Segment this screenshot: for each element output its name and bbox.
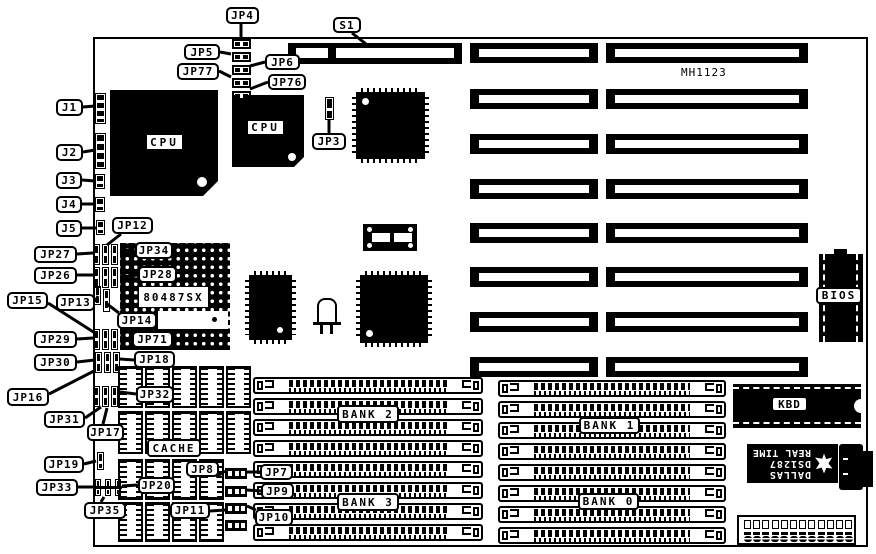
pga-cutout [158, 311, 228, 329]
callout-line-jp16 [49, 371, 94, 394]
power-pin-oval [845, 536, 853, 542]
slot-opening [479, 49, 589, 57]
simm-clip-right [473, 465, 479, 474]
silkscreen-model: MH1123 [681, 66, 751, 81]
strip-cell [235, 523, 239, 528]
simm-clip-right [473, 444, 479, 453]
simm-clip-left [502, 531, 508, 540]
cache-chip-body [208, 414, 217, 451]
simm-pins-upper [289, 464, 447, 471]
pin1-dot-cpu-chip-primary [197, 177, 207, 187]
isa-slot-long-2 [606, 89, 808, 109]
simm-latch-right [462, 401, 471, 409]
slot-opening [615, 273, 799, 281]
qfp-chip-c-pin1-dot [366, 330, 373, 337]
isa-slot-short-8 [470, 357, 598, 377]
jumper-row-b [102, 267, 109, 288]
simm-pins-lower [534, 538, 690, 542]
power-pin-oval [799, 536, 807, 542]
strip-cell [228, 471, 232, 476]
jumper-row-e [102, 386, 109, 407]
simm-clip-right [473, 486, 479, 495]
power-pin-box [744, 520, 751, 529]
power-pin-dash [827, 532, 834, 535]
top-jumper [232, 39, 251, 49]
power-pin-oval [790, 536, 798, 542]
simm-latch-left [265, 443, 274, 451]
rtc-chip: DALLASDS1287REAL TIME [747, 444, 838, 483]
simm-clip-left [257, 402, 263, 411]
power-pin-dash [753, 532, 760, 535]
simm-latch-left [510, 488, 519, 496]
simm-latch-right [462, 380, 471, 388]
power-pin-dash [790, 532, 797, 535]
top-jumper [232, 78, 251, 88]
qfp-chip-c-pins-left [356, 280, 360, 338]
isa-slot-long-3 [606, 134, 808, 154]
j2-connector [95, 133, 106, 169]
qfp-chip-b-pins-right [292, 280, 296, 335]
isa-slot-long-1 [606, 43, 808, 63]
isa-slot-long-6 [606, 267, 808, 287]
slot-opening [615, 318, 799, 326]
callout-jp35: JP35 [84, 502, 126, 519]
label-bank3: BANK 3 [337, 493, 399, 511]
simm-pins-upper [534, 446, 690, 453]
slot-opening [296, 48, 328, 58]
jumper-row-c [111, 329, 118, 350]
simm-socket [498, 380, 726, 397]
simm-clip-left [502, 405, 508, 414]
power-pin-oval [808, 536, 816, 542]
jp19-jumper [97, 452, 104, 470]
power-pin-dash [781, 532, 788, 535]
simm-pins-lower [534, 454, 690, 458]
callout-jp28: JP28 [138, 266, 177, 283]
power-pin-oval [771, 536, 779, 542]
power-pin-box [827, 520, 834, 529]
jumper-row-a [102, 244, 109, 265]
power-pin-dash [836, 532, 843, 535]
simm-socket [498, 443, 726, 460]
callout-j1: J1 [56, 99, 83, 116]
cpu-chip-secondary-label: CPU [247, 120, 284, 135]
cache-chip-body [208, 369, 217, 405]
simm-latch-left [265, 527, 274, 535]
simm-latch-left [510, 446, 519, 454]
simm-clip-right [473, 381, 479, 390]
simm-pins-upper [534, 530, 690, 537]
simm-latch-left [265, 380, 274, 388]
dip-component [363, 224, 417, 251]
rtc-text: DALLASDS1287REAL TIME [752, 447, 811, 480]
simm-pins-upper [289, 527, 447, 534]
power-pin-dash [799, 532, 806, 535]
slot-opening [615, 49, 799, 57]
power-pin-box [790, 520, 797, 529]
power-pin-oval [753, 536, 761, 542]
slot-opening [479, 140, 589, 148]
simm-latch-right [705, 530, 714, 538]
label-cache: CACHE [147, 439, 201, 457]
cache-chip-body [127, 369, 136, 405]
power-pin-box [781, 520, 788, 529]
cache-chip-body [181, 369, 190, 405]
power-pin-dash [845, 532, 852, 535]
strip-cell [228, 523, 232, 528]
callout-jp33: JP33 [36, 479, 78, 496]
slot-opening [479, 318, 589, 326]
jumper-row-c [102, 329, 109, 350]
jumper-row-a [111, 244, 118, 265]
cpu-chip-primary-label: CPU [146, 134, 183, 150]
slot-opening [615, 140, 799, 148]
cache-chip-body [127, 505, 136, 539]
simm-socket [498, 401, 726, 418]
callout-jp16: JP16 [7, 388, 49, 406]
cache-chip [199, 411, 224, 454]
simm-pins-upper [534, 467, 690, 474]
simm-latch-right [462, 527, 471, 535]
memory-jumper-strip [225, 503, 247, 514]
cache-chip-body [154, 505, 163, 539]
jumper-row-c [93, 329, 100, 350]
cache-chip-body [127, 414, 136, 451]
callout-jp13: JP13 [56, 294, 95, 311]
simm-pins-lower [289, 514, 447, 518]
simm-latch-right [705, 446, 714, 454]
memory-jumper-strip [225, 486, 247, 497]
callout-jp12: JP12 [112, 217, 153, 234]
simm-clip-right [716, 405, 722, 414]
din-connector-barrel [861, 451, 873, 487]
callout-jp31: JP31 [44, 411, 85, 428]
simm-pins-upper [534, 404, 690, 411]
power-pin-oval [836, 536, 844, 542]
j5-connector [96, 220, 105, 235]
qfp-chip-c-pins-right [428, 280, 432, 338]
memory-jumper-strip [225, 520, 247, 531]
callout-jp5: JP5 [184, 44, 220, 60]
callout-jp14: JP14 [117, 312, 157, 329]
simm-socket [498, 527, 726, 544]
strip-cell [241, 471, 245, 476]
strip-cell [241, 489, 245, 494]
pga-dot [212, 317, 217, 322]
simm-pins-upper [534, 509, 690, 516]
simm-latch-right [462, 422, 471, 430]
rtc-part: DS1287 [752, 458, 811, 469]
simm-latch-left [510, 425, 519, 433]
simm-clip-left [257, 444, 263, 453]
callout-line-jp29 [77, 338, 93, 339]
power-pin-dash [818, 532, 825, 535]
jumper-row-b [93, 267, 100, 288]
simm-latch-left [510, 383, 519, 391]
qfp-chip-c-pins-bottom [365, 343, 423, 347]
simm-pins-lower [534, 391, 690, 395]
kbd-notch [854, 399, 862, 413]
simm-clip-left [502, 426, 508, 435]
simm-latch-right [462, 506, 471, 514]
slot-opening [479, 273, 589, 281]
simm-pins-lower [289, 535, 447, 539]
power-pin-dash [808, 532, 815, 535]
simm-clip-left [257, 381, 263, 390]
simm-clip-right [473, 528, 479, 537]
cache-chip-body [127, 462, 136, 497]
simm-clip-left [502, 489, 508, 498]
isa-slot-short-3 [470, 134, 598, 154]
power-pin-box [836, 520, 843, 529]
slot-opening [479, 95, 589, 103]
jp13-jumper [94, 286, 101, 305]
qfp-chip-b-pin1-dot [277, 327, 283, 333]
motherboard-diagram: MH1123 CPUCPU80487SXDALLASDS1287REAL TIM… [0, 0, 876, 554]
dip-dot [408, 243, 413, 248]
callout-jp27: JP27 [34, 246, 77, 263]
simm-pins-lower [289, 451, 447, 455]
cache-chip [199, 366, 224, 408]
jumper-row-e [111, 386, 118, 407]
dip-dot [367, 227, 372, 232]
cache-chip [172, 366, 197, 408]
slot-opening [479, 185, 589, 193]
label-bank1: BANK 1 [579, 417, 640, 434]
callout-jp7: JP7 [260, 464, 293, 480]
callout-jp9: JP9 [261, 483, 294, 499]
isa-slot-long-5 [606, 223, 808, 243]
rtc-flip: DALLASDS1287REAL TIME [747, 444, 838, 483]
slot-opening [615, 229, 799, 237]
simm-latch-left [265, 401, 274, 409]
power-pin-oval [780, 536, 788, 542]
power-pin-dash [772, 532, 779, 535]
qfp-chip-b [249, 275, 292, 340]
isa-slot-short-5 [470, 223, 598, 243]
simm-latch-left [510, 467, 519, 475]
j1-connector [95, 93, 106, 124]
s1-slot [288, 43, 462, 64]
simm-pins-lower [289, 472, 447, 476]
slot-opening [615, 363, 799, 371]
simm-socket [253, 377, 483, 394]
jp14-jumper [103, 289, 110, 312]
simm-clip-right [473, 507, 479, 516]
jumper-row-d [104, 352, 111, 373]
strip-cell [228, 489, 232, 494]
simm-clip-left [502, 384, 508, 393]
dip-window [372, 233, 390, 242]
isa-slot-short-2 [470, 89, 598, 109]
simm-clip-left [502, 447, 508, 456]
dip-window [394, 233, 412, 242]
simm-pins-lower [289, 388, 447, 392]
callout-j3: J3 [56, 172, 82, 189]
pin1-dot-cpu-chip-secondary [288, 153, 296, 161]
power-pin-box [762, 520, 769, 529]
callout-j2: J2 [56, 144, 83, 161]
callout-jp11: JP11 [170, 502, 210, 519]
simm-pins-lower [534, 517, 690, 521]
jumper-row-d [113, 352, 120, 373]
isa-slot-long-8 [606, 357, 808, 377]
callout-jp71: JP71 [132, 331, 173, 348]
callout-jp29: JP29 [34, 331, 77, 348]
dallas-logo-icon [815, 454, 833, 474]
simm-clip-right [473, 423, 479, 432]
callout-jp4: JP4 [226, 7, 259, 24]
power-pin-dash [762, 532, 769, 535]
simm-pins-lower [534, 475, 690, 479]
power-pin-oval [744, 536, 752, 542]
top-jumper [232, 91, 251, 101]
jumper-row-a [93, 244, 100, 265]
cache-chip [226, 411, 251, 454]
jumper-row-b [111, 267, 118, 288]
callout-jp8: JP8 [186, 461, 219, 477]
qfp-chip-b-pins-left [245, 280, 249, 335]
jp33-crossbar [95, 486, 122, 489]
simm-clip-right [716, 531, 722, 540]
simm-clip-right [716, 468, 722, 477]
simm-latch-right [705, 383, 714, 391]
cache-chip [145, 502, 170, 542]
simm-clip-right [716, 384, 722, 393]
callout-jp34: JP34 [135, 242, 173, 259]
j3-connector [95, 174, 105, 189]
callout-jp15: JP15 [7, 292, 48, 309]
jumper-row-d [95, 352, 102, 373]
simm-latch-right [462, 464, 471, 472]
jumper-row-e [93, 386, 100, 407]
slot-opening [479, 229, 589, 237]
qfp-chip-a-pins-top [361, 88, 420, 92]
power-pin-oval [817, 536, 825, 542]
strip-cell [228, 506, 232, 511]
simm-pins-upper [289, 422, 447, 429]
simm-clip-right [716, 426, 722, 435]
callout-jp20: JP20 [138, 477, 175, 494]
callout-jp6: JP6 [265, 54, 300, 70]
callout-jp10: JP10 [255, 509, 293, 526]
slot-opening [336, 48, 454, 58]
callout-jp76: JP76 [268, 74, 306, 90]
slot-opening [615, 95, 799, 103]
simm-latch-left [510, 509, 519, 517]
simm-clip-right [716, 510, 722, 519]
simm-pins-upper [289, 443, 447, 450]
rtc-line: REAL TIME [752, 447, 811, 458]
simm-latch-left [510, 530, 519, 538]
strip-cell [241, 506, 245, 511]
qfp-chip-a-pin1-dot [362, 98, 369, 105]
simm-latch-right [462, 485, 471, 493]
crystal-leg [330, 325, 333, 334]
isa-slot-short-6 [470, 267, 598, 287]
slot-opening [615, 185, 799, 193]
simm-pins-lower [289, 430, 447, 434]
dip-dot [408, 227, 413, 232]
rtc-brand: DALLAS [752, 469, 811, 480]
cache-chip-body [235, 414, 244, 451]
power-connector [737, 515, 856, 545]
simm-latch-left [265, 422, 274, 430]
callout-jp30: JP30 [34, 354, 77, 371]
simm-pins-upper [534, 383, 690, 390]
power-pin-box [808, 520, 815, 529]
qfp-chip-b-pins-bottom [254, 340, 287, 344]
simm-clip-left [257, 423, 263, 432]
qfp-chip-b-pins-top [254, 271, 287, 275]
callout-jp17: JP17 [87, 424, 124, 441]
power-pin-dash [744, 532, 751, 535]
label-bios: BIOS [816, 287, 862, 304]
strip-cell [235, 506, 239, 511]
jp3-jumper [325, 97, 334, 120]
qfp-chip-a-pins-left [352, 97, 356, 154]
power-pin-box [772, 520, 779, 529]
callout-line-jp27 [77, 253, 93, 254]
callout-j5: J5 [56, 220, 82, 237]
cache-chip [226, 366, 251, 408]
simm-latch-right [705, 509, 714, 517]
power-pin-box [799, 520, 806, 529]
crystal [317, 298, 337, 324]
power-pin-box [818, 520, 825, 529]
slot-opening [479, 363, 589, 371]
isa-slot-long-4 [606, 179, 808, 199]
power-pin-box [753, 520, 760, 529]
simm-pins-upper [289, 485, 447, 492]
simm-socket [253, 524, 483, 541]
top-jumper [232, 65, 251, 75]
simm-clip-left [257, 528, 263, 537]
callout-jp32: JP32 [136, 386, 174, 403]
simm-latch-right [705, 488, 714, 496]
j4-connector [95, 197, 105, 212]
crystal-leg [320, 325, 323, 334]
isa-slot-long-7 [606, 312, 808, 332]
isa-slot-short-4 [470, 179, 598, 199]
power-pin-box [845, 520, 852, 529]
callout-jp77: JP77 [177, 63, 219, 80]
isa-slot-short-1 [470, 43, 598, 63]
simm-latch-left [510, 404, 519, 412]
strip-cell [235, 471, 239, 476]
simm-clip-left [502, 468, 508, 477]
simm-latch-right [705, 425, 714, 433]
qfp-chip-c-pins-top [365, 271, 423, 275]
simm-pins-upper [289, 380, 447, 387]
bios-tab [834, 249, 847, 255]
label-kbd: KBD [771, 396, 808, 412]
strip-cell [241, 523, 245, 528]
memory-jumper-strip [225, 468, 247, 479]
callout-jp3: JP3 [312, 133, 346, 150]
callout-jp19: JP19 [44, 456, 84, 473]
coprocessor-socket-label: 80487SX [139, 287, 208, 307]
label-bank0: BANK 0 [578, 493, 639, 510]
power-pin-oval [762, 536, 770, 542]
callout-s1: S1 [333, 17, 361, 33]
simm-latch-right [462, 443, 471, 451]
simm-socket [253, 440, 483, 457]
top-jumper [232, 52, 251, 62]
kbd-dash-bottom [733, 422, 861, 424]
power-pin-oval [826, 536, 834, 542]
simm-latch-right [705, 467, 714, 475]
